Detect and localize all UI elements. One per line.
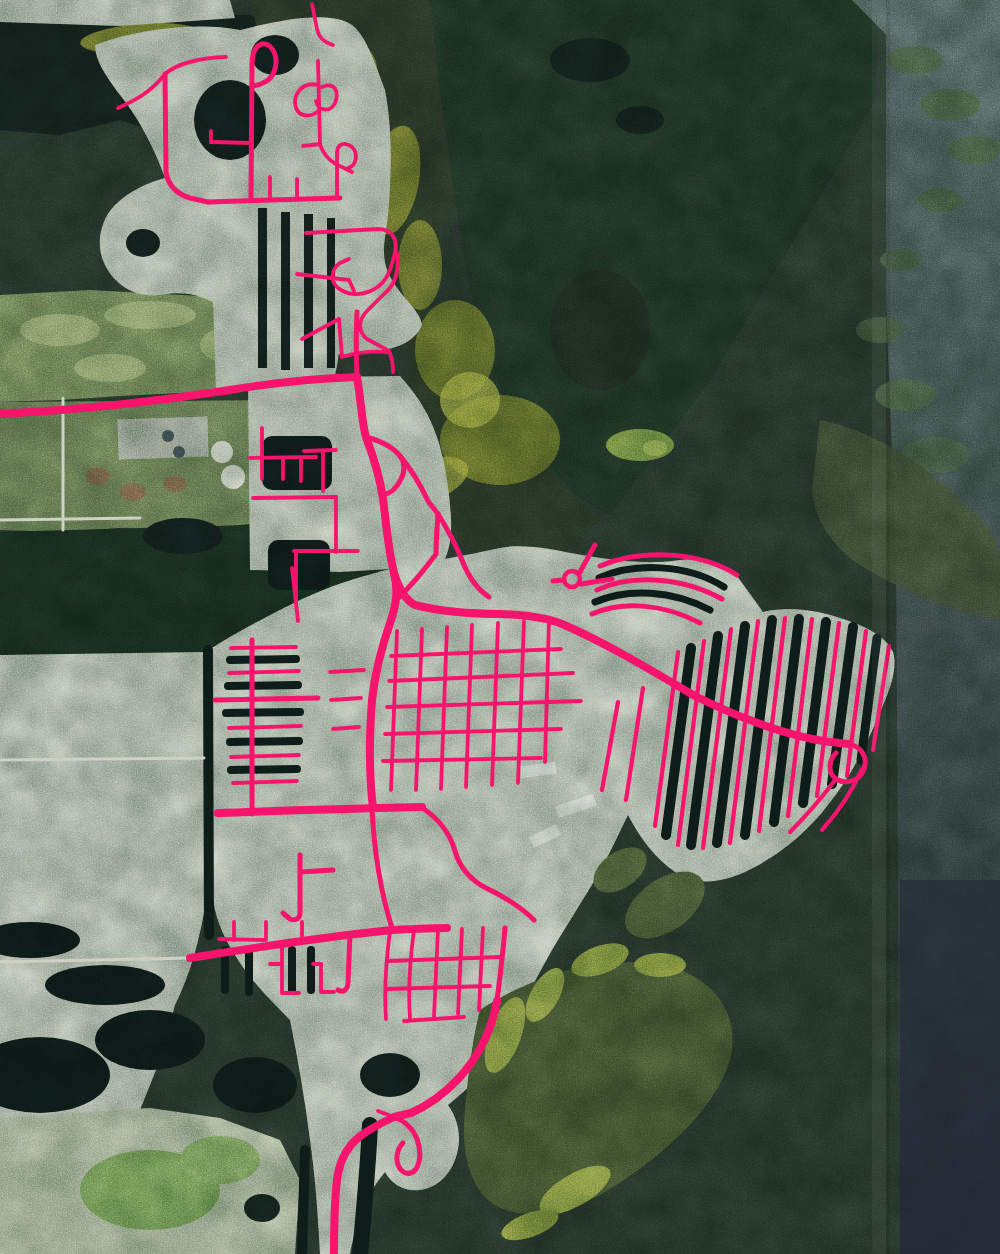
highlighted-road-minor <box>231 755 299 757</box>
unhighlighted-road <box>0 518 140 520</box>
bottom-right-deep <box>900 880 1000 1254</box>
highlighted-road-minor <box>211 142 252 143</box>
highlighted-road-mid <box>300 870 333 872</box>
highlighted-road-minor <box>229 671 299 673</box>
seam-highlight <box>872 0 886 1254</box>
canal <box>230 659 296 660</box>
canal <box>208 650 209 935</box>
highlighted-road-mid <box>215 698 318 700</box>
highlighted-road-minor <box>331 698 361 700</box>
highlighted-road-minor <box>231 647 296 648</box>
canal <box>228 685 298 686</box>
highlighted-road-minor <box>330 670 364 672</box>
screenshot-root <box>0 0 1000 1254</box>
highlighted-road-minor <box>304 450 336 451</box>
highlighted-road-minor <box>219 939 264 940</box>
canal <box>302 1150 305 1254</box>
canal <box>231 769 297 770</box>
highlighted-road-minor <box>333 727 359 729</box>
highlighted-road-minor <box>253 497 336 498</box>
seam-edge <box>886 0 890 1254</box>
highlighted-road-minor <box>229 726 301 728</box>
satellite-map[interactable] <box>0 0 1000 1254</box>
unhighlighted-road <box>0 758 204 760</box>
highlighted-road-minor <box>303 144 320 146</box>
highlighted-road-minor <box>233 781 297 783</box>
canal <box>360 1125 370 1254</box>
canal <box>230 741 299 742</box>
highlighted-road-mid <box>356 312 357 377</box>
canal <box>226 712 300 713</box>
